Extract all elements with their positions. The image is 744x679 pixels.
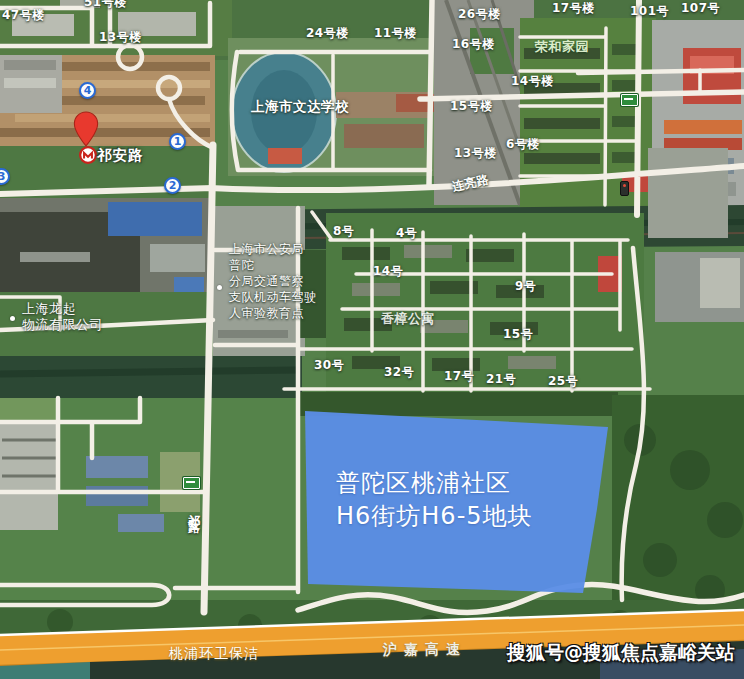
residence-label: 荣和家园 (535, 38, 589, 56)
road-sign-icon (183, 477, 200, 489)
building-label: 6号楼 (506, 136, 540, 153)
police-line: 上海市公安局 (229, 241, 317, 257)
poi-dot (10, 316, 15, 321)
route-marker-2[interactable]: 2 (164, 177, 181, 194)
watermark: 搜狐号@搜狐焦点嘉峪关站 (507, 640, 735, 666)
parcel-title-line2: H6街坊H6-5地块 (336, 500, 533, 532)
road-label-expressway: 沪嘉高速 (383, 641, 467, 659)
building-label: 17号楼 (552, 0, 595, 17)
building-label: 14号楼 (511, 73, 554, 90)
road-sign-icon (621, 94, 638, 106)
building-label: 47号楼 (2, 7, 45, 24)
unit-label: 21号 (486, 371, 516, 388)
logistics-line: 上海龙起 (22, 301, 103, 317)
metro-station-label: 祁安路 (97, 146, 144, 165)
poi-dot (217, 285, 222, 290)
police-education-point-label: 上海市公安局 普陀 分局交通警察 支队机动车驾驶 人审验教育点 (229, 241, 317, 321)
apartment-label: 香樟公寓 (381, 310, 435, 328)
building-label: 11号楼 (374, 25, 417, 42)
logistics-line: 物流有限公司 (22, 317, 103, 333)
satellite-map[interactable]: 47号楼 51号楼 13号楼 24号楼 11号楼 26号楼 16号楼 15号楼 … (0, 0, 744, 679)
building-label: 13号楼 (454, 145, 497, 162)
route-marker-number: 2 (169, 179, 177, 192)
road-label-sanitation: 桃浦环卫保洁 (169, 645, 259, 663)
building-label: 26号楼 (458, 6, 501, 23)
police-line: 分局交通警察 (229, 273, 317, 289)
building-label: 101号 (630, 3, 669, 20)
route-marker-number: 3 (0, 170, 5, 183)
route-marker-4[interactable]: 4 (79, 82, 96, 99)
route-marker-1[interactable]: 1 (169, 133, 186, 150)
building-label: 16号楼 (452, 36, 495, 53)
police-line: 人审验教育点 (229, 305, 317, 321)
unit-label: 30号 (314, 357, 344, 374)
metro-station-icon[interactable] (79, 146, 97, 164)
unit-label: 8号 (333, 223, 354, 240)
building-label: 51号楼 (84, 0, 127, 11)
map-pin-icon[interactable] (73, 111, 99, 147)
unit-label: 14号 (373, 263, 403, 280)
unit-label: 17号 (444, 368, 474, 385)
police-line: 支队机动车驾驶 (229, 289, 317, 305)
parcel-title-line1: 普陀区桃浦社区 (336, 467, 511, 499)
school-label: 上海市文达学校 (251, 98, 349, 116)
building-label: 24号楼 (306, 25, 349, 42)
unit-label: 15号 (503, 326, 533, 343)
unit-label: 32号 (384, 364, 414, 381)
building-label: 13号楼 (99, 29, 142, 46)
building-label: 15号楼 (450, 98, 493, 115)
unit-label: 25号 (548, 373, 578, 390)
police-line: 普陀 (229, 257, 317, 273)
route-marker-number: 1 (174, 135, 182, 148)
logistics-company-label: 上海龙起 物流有限公司 (22, 301, 103, 333)
route-marker-number: 4 (84, 84, 92, 97)
traffic-signal-icon (620, 181, 629, 196)
road-label-qianlu: 祁安路 (185, 504, 202, 516)
building-label: 107号 (681, 0, 720, 17)
unit-label: 9号 (515, 278, 536, 295)
unit-label: 4号 (396, 225, 417, 242)
